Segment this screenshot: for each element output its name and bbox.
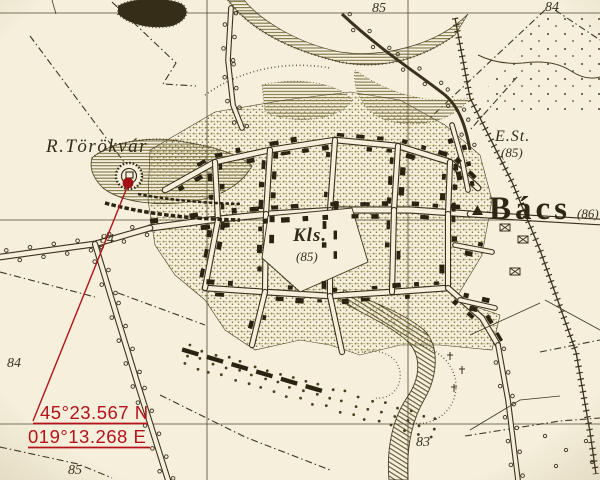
map-canvas: R.Törökvár Bács (86) E.St. (85) Kls. (85… <box>0 0 600 480</box>
spot-height: 85 <box>372 1 386 16</box>
spot-height: 84 <box>100 232 114 247</box>
station-label: E.St. <box>494 128 530 145</box>
ruin-label: R.Törökvár <box>45 136 148 157</box>
town-elevation-label: (86) <box>577 206 599 221</box>
longitude-label: 019°13.268 E <box>28 426 146 447</box>
monastery-elevation-label: (85) <box>296 249 318 264</box>
historical-map: R.Törökvár Bács (86) E.St. (85) Kls. (85… <box>0 0 600 480</box>
station-elevation-label: (85) <box>501 145 523 160</box>
latitude-label: 45°23.567 N <box>40 402 149 423</box>
spot-height: 84 <box>7 356 21 371</box>
coordinate-marker-dot[interactable] <box>123 178 134 189</box>
town-name-label: Bács <box>489 191 571 227</box>
spot-height: 85 <box>68 463 82 478</box>
monastery-label: Kls. <box>292 225 327 246</box>
spot-height: 83 <box>416 435 430 450</box>
spot-height: 84 <box>545 0 559 15</box>
